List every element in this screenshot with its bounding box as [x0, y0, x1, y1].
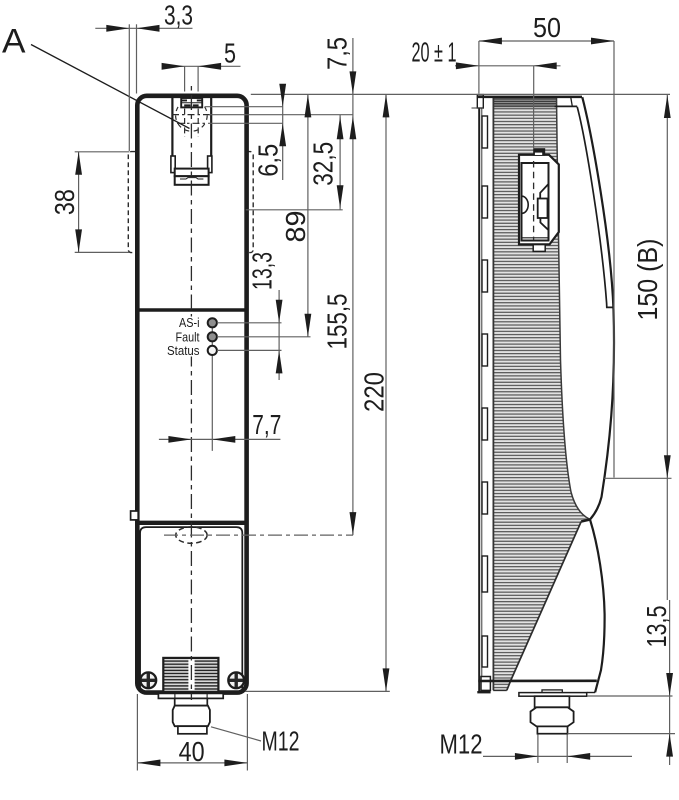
svg-text:5: 5	[224, 38, 236, 69]
svg-text:89: 89	[280, 211, 311, 243]
svg-text:7,5: 7,5	[322, 37, 353, 70]
svg-text:Fault: Fault	[176, 329, 200, 344]
svg-text:AS-i: AS-i	[179, 315, 200, 330]
svg-text:A: A	[2, 23, 26, 61]
svg-text:40: 40	[179, 736, 205, 767]
svg-text:M12: M12	[440, 729, 483, 760]
svg-text:32,5: 32,5	[308, 142, 339, 186]
svg-text:Status: Status	[167, 343, 200, 358]
svg-text:20 ± 1: 20 ± 1	[412, 37, 457, 68]
svg-text:150 (B): 150 (B)	[632, 239, 663, 321]
svg-text:13,3: 13,3	[247, 252, 278, 290]
svg-text:M12: M12	[262, 726, 300, 757]
svg-text:13,5: 13,5	[641, 606, 672, 648]
svg-text:50: 50	[533, 12, 561, 43]
svg-text:155,5: 155,5	[322, 294, 353, 350]
svg-text:7,7: 7,7	[252, 409, 281, 440]
svg-text:38: 38	[49, 189, 80, 215]
svg-text:6,5: 6,5	[253, 144, 284, 177]
svg-text:3,3: 3,3	[164, 0, 193, 31]
svg-text:220: 220	[359, 372, 390, 412]
